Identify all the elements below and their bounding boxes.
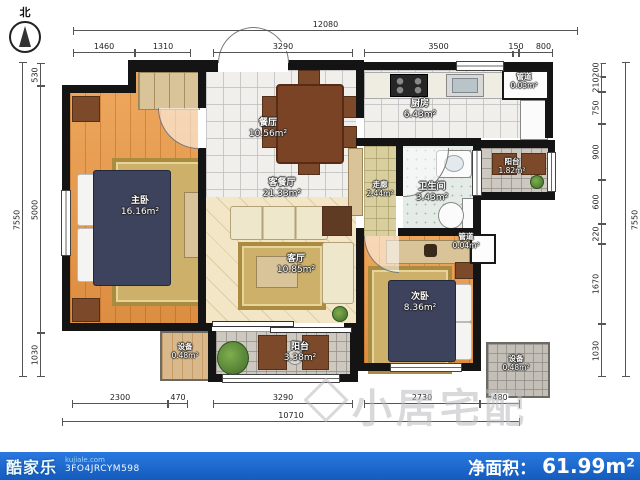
master-bed[interactable] [93, 170, 171, 286]
nightstand[interactable] [72, 298, 100, 322]
room-label-living: 客厅 10.85m² [266, 254, 326, 276]
wall [364, 62, 456, 70]
balcony-plant[interactable] [530, 175, 544, 189]
project-code: 3FO4JRCYM598 [65, 465, 140, 475]
balcony-plant[interactable] [217, 341, 249, 375]
dining-chair[interactable] [262, 96, 277, 118]
nightstand[interactable] [455, 262, 474, 279]
balcony-sliding-door[interactable] [270, 327, 352, 333]
wall [473, 194, 481, 370]
window [472, 150, 482, 196]
wall [481, 192, 555, 200]
dim-segment: 5000 [40, 86, 41, 333]
room-label-balcony-right: 阳台 1.82m² [482, 157, 542, 175]
wardrobe[interactable] [138, 72, 200, 110]
dim-right-total: 7550 [625, 62, 626, 377]
room-label-duct-mid: 管道 0.04m² [438, 232, 494, 250]
fridge[interactable] [520, 100, 548, 140]
dresser[interactable] [72, 96, 100, 122]
wall [62, 323, 212, 331]
room-label-master: 主卧 16.16m² [110, 196, 170, 218]
dim-left-total: 7550 [22, 62, 23, 377]
sofa-chaise[interactable] [322, 242, 354, 304]
room-label-equip-left: 设备 0.48m² [158, 342, 212, 360]
room-label-corridor: 走廊 2.44m² [350, 180, 410, 198]
dim-segment: 470 [168, 403, 188, 404]
dim-segment: 210 [601, 77, 602, 92]
wall [288, 60, 364, 70]
dining-chair[interactable] [298, 70, 320, 85]
window [547, 152, 556, 192]
sofa[interactable] [230, 206, 328, 240]
window [456, 61, 504, 71]
window [222, 374, 340, 383]
net-area-value: 61.99m² [542, 454, 635, 478]
dim-segment: 3500 [364, 52, 513, 53]
dim-segment: 3290 [213, 403, 353, 404]
brand-logo: 酷家乐 [6, 454, 57, 478]
outside-patch [68, 58, 128, 85]
watermark-cube-icon [303, 377, 348, 422]
dim-segment: 800 [519, 52, 553, 53]
dim-segment: 530 [40, 63, 41, 86]
wall [198, 148, 206, 323]
dim-segment: 1030 [601, 324, 602, 377]
north-compass: 北 [8, 4, 42, 53]
dim-segment: 200 [601, 63, 602, 77]
dim-segment: 1460 [73, 52, 135, 53]
room-label-bathroom: 卫生间 3.43m² [402, 182, 462, 204]
compass-needle-icon [19, 26, 31, 47]
dim-top-total: 12080 [73, 30, 578, 31]
dim-segment: 480 [480, 403, 520, 404]
stove[interactable] [390, 74, 428, 97]
dim-bottom-total: 10710 [62, 421, 520, 422]
room-label-bedroom2: 次卧 8.36m² [390, 292, 450, 314]
sink-basin [452, 78, 478, 93]
dim-segment: 1310 [135, 52, 191, 53]
dim-segment: 900 [601, 124, 602, 180]
dim-segment: 3290 [213, 52, 353, 53]
dim-segment: 220 [601, 224, 602, 244]
net-area-label: 净面积： [468, 454, 536, 479]
entry-door-arc[interactable] [218, 27, 254, 63]
plant[interactable] [332, 306, 348, 322]
toilet-bowl[interactable] [438, 202, 464, 229]
side-table[interactable] [322, 206, 352, 236]
footer-bar: 酷家乐 kujiale.com 3FO4JRCYM598 净面积： 61.99m… [0, 452, 640, 480]
room-label-dining: 餐厅 10.56m² [238, 118, 298, 140]
window [390, 363, 462, 372]
window [61, 190, 71, 256]
wall [481, 140, 555, 148]
dining-chair[interactable] [342, 126, 357, 148]
room-label-balcony-bottom: 阳台 3.38m² [268, 342, 332, 364]
room-label-living-dining: 客餐厅 21.33m² [252, 178, 312, 200]
dining-chair[interactable] [342, 96, 357, 118]
wall [198, 60, 206, 108]
wall [128, 60, 136, 93]
dim-segment: 1670 [601, 244, 602, 324]
north-label: 北 [8, 4, 42, 20]
dim-segment: 600 [601, 180, 602, 224]
wall [356, 138, 481, 146]
dim-segment: 2300 [72, 403, 168, 404]
dim-segment: 750 [601, 92, 602, 124]
wall [356, 62, 364, 118]
plan-ids: kujiale.com 3FO4JRCYM598 [65, 457, 140, 475]
wall [62, 85, 136, 93]
wall [473, 138, 481, 150]
dim-segment: 2730 [364, 403, 480, 404]
compass-circle [9, 21, 41, 53]
dim-segment: 1030 [40, 333, 41, 377]
room-label-kitchen: 厨房 6.43m² [390, 99, 450, 121]
room-label-duct-top: 管道 0.03m² [496, 72, 552, 90]
room-label-equip-right: 设备 0.48m² [488, 354, 544, 372]
desk-item [424, 244, 437, 257]
